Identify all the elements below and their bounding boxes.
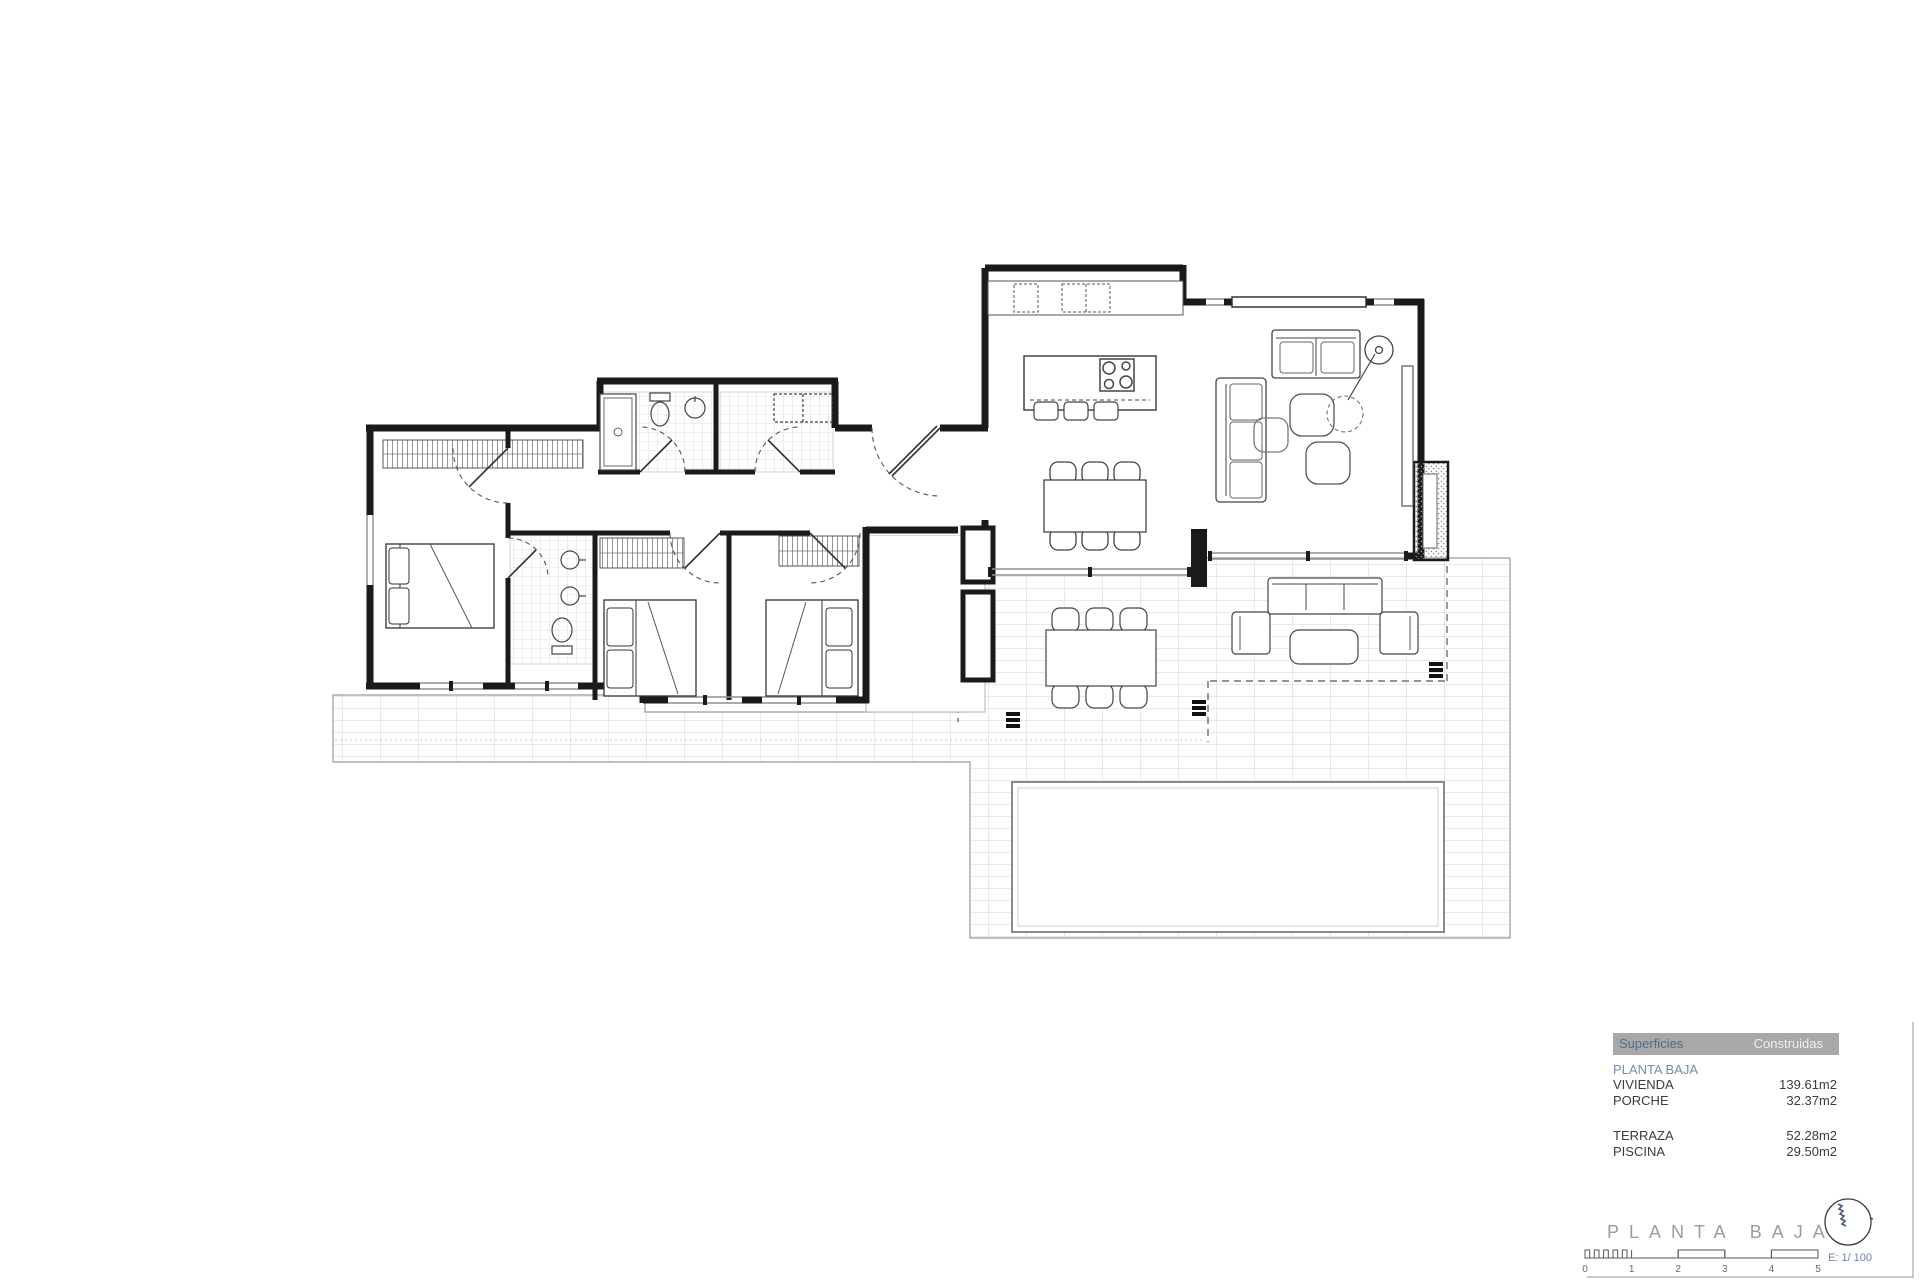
bed-master (386, 544, 494, 628)
outdoor-dining-table (1046, 630, 1156, 686)
outdoor-dining-set (1046, 608, 1156, 708)
outdoor-armchair-right (1380, 612, 1418, 654)
legend-row: TERRAZA 52.28m2 (1613, 1128, 1839, 1144)
svg-text:3: 3 (1722, 1264, 1728, 1275)
sofa-three-seat (1216, 378, 1266, 502)
legend-row-label: PORCHE (1613, 1093, 1669, 1109)
svg-text:4: 4 (1769, 1264, 1775, 1275)
legend-row-label: PISCINA (1613, 1144, 1665, 1160)
loveseat-two-seat (1272, 330, 1360, 378)
pool (1012, 782, 1444, 932)
legend-row-value: 29.50m2 (1786, 1144, 1839, 1160)
legend-body: PLANTA BAJA VIVIENDA 139.61m2 PORCHE 32.… (1613, 1055, 1839, 1160)
shower (600, 394, 636, 470)
scale-tick-labels: 0 1 2 3 4 5 (1582, 1264, 1821, 1275)
legend-header-col1: Superficies (1619, 1036, 1683, 1052)
dining-set-indoor (1044, 462, 1146, 550)
svg-text:0: 0 (1582, 1264, 1588, 1275)
svg-text:5: 5 (1815, 1264, 1821, 1275)
legend-row-label: TERRAZA (1613, 1128, 1674, 1144)
legend-header-col2: Construidas (1754, 1036, 1839, 1052)
outdoor-armchair-left (1232, 612, 1270, 654)
drawing-sheet: PLANTA BAJA 0 1 2 3 4 5 E: 1/ 100 (0, 0, 1920, 1280)
legend-row-value: 52.28m2 (1786, 1128, 1839, 1144)
legend-row: PORCHE 32.37m2 (1613, 1093, 1839, 1109)
svg-text:2: 2 (1675, 1264, 1681, 1275)
kitchen-stools (1034, 402, 1118, 420)
legend-row-value: 32.37m2 (1786, 1093, 1839, 1109)
outdoor-sofa (1268, 578, 1382, 614)
outdoor-coffee-table (1290, 630, 1358, 664)
north-scribble (1838, 1204, 1846, 1226)
dining-table (1044, 480, 1146, 532)
areas-legend: Superficies Construidas PLANTA BAJA VIVI… (1613, 1033, 1839, 1160)
living-top-lintel (1232, 297, 1366, 307)
wall-stub-living-porch (1191, 529, 1207, 587)
legend-row-label: VIVIENDA (1613, 1077, 1674, 1093)
svg-text:1: 1 (1629, 1264, 1635, 1275)
legend-header: Superficies Construidas (1613, 1033, 1839, 1055)
sheet-title: PLANTA BAJA (1607, 1222, 1835, 1242)
legend-row-value: 139.61m2 (1779, 1077, 1839, 1093)
legend-section-title: PLANTA BAJA (1613, 1063, 1839, 1077)
scale-label: E: 1/ 100 (1828, 1252, 1872, 1264)
sideboard (1402, 366, 1413, 506)
scale-bar (1585, 1250, 1818, 1258)
bed-2 (604, 600, 696, 696)
legend-row: VIVIENDA 139.61m2 (1613, 1077, 1839, 1093)
bed-3 (766, 600, 858, 696)
fireplace-chimney (1414, 462, 1448, 560)
porch-pillars (963, 528, 993, 680)
legend-row: PISCINA 29.50m2 (1613, 1144, 1839, 1160)
legend-gap (1613, 1109, 1839, 1128)
title-block: PLANTA BAJA 0 1 2 3 4 5 E: 1/ 100 (1582, 1199, 1873, 1275)
